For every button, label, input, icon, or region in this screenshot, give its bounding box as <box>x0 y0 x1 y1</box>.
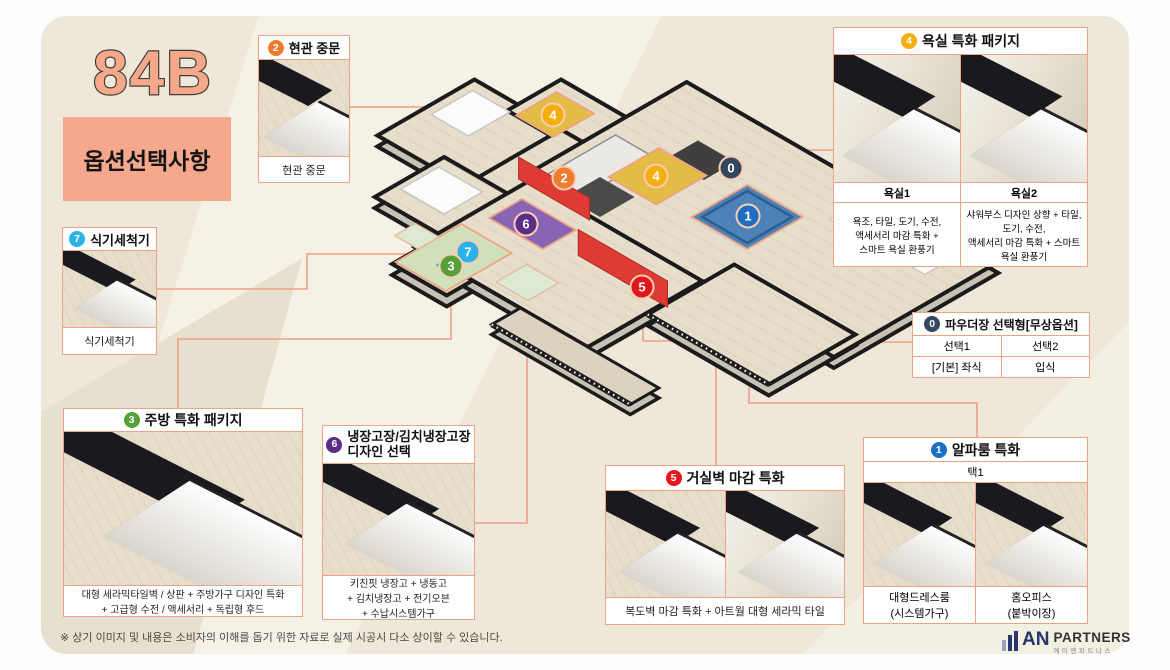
svg-text:4: 4 <box>549 108 557 123</box>
plan-badge-1: 1 <box>737 205 760 228</box>
svg-text:2: 2 <box>560 171 567 186</box>
logo-korean: 에이앤파트너스 <box>1053 645 1130 655</box>
dishwasher-title: 식기세척기 <box>90 230 150 249</box>
badge-0-icon: 0 <box>924 316 940 332</box>
alpha-room-title: 알파룸 특화 <box>952 440 1020 460</box>
an-partners-logo: AN PARTNERS 에이앤파트너스 <box>1002 630 1131 655</box>
callout-alpha-room: 1 알파룸 특화 택1 대형드레스룸 (시스템가구) 홈오피스 (붙박이장) <box>863 437 1088 624</box>
powder-value-2: 입식 <box>1001 357 1090 377</box>
kitchen-title: 주방 특화 패키지 <box>145 410 243 430</box>
dressroom-photo <box>864 483 975 586</box>
badge-7-icon: 7 <box>69 231 85 247</box>
living-wall-photo-1 <box>606 490 725 597</box>
living-wall-title: 거실벽 마감 특화 <box>687 468 785 488</box>
svg-text:4: 4 <box>652 169 660 184</box>
badge-1-icon: 1 <box>931 442 947 458</box>
bath1-photo <box>834 54 960 182</box>
svg-text:0: 0 <box>727 161 734 176</box>
entrance-door-photo <box>259 59 349 156</box>
powder-title: 파우더장 선택형[무상옵션] <box>945 316 1078 333</box>
callout-living-wall: 5 거실벽 마감 특화 복도벽 마감 특화 + 아트월 대형 세라믹 타일 <box>605 465 845 625</box>
svg-text:7: 7 <box>464 245 471 260</box>
dishwasher-photo <box>63 250 156 327</box>
bath2-photo <box>960 54 1087 182</box>
plan-badge-6: 6 <box>515 213 538 236</box>
badge-5-icon: 5 <box>666 470 682 486</box>
living-wall-caption: 복도벽 마감 특화 + 아트월 대형 세라믹 타일 <box>606 597 844 624</box>
bath-package-title: 욕실 특화 패키지 <box>922 31 1020 51</box>
svg-text:3: 3 <box>447 259 454 274</box>
unit-code: 84B <box>68 38 238 109</box>
bath1-label: 욕실1 <box>834 183 960 202</box>
plan-badge-0: 0 <box>720 157 743 180</box>
plan-badge-5: 5 <box>631 276 654 299</box>
plan-badge-2: 2 <box>553 167 576 190</box>
fridge-photo <box>323 463 474 575</box>
kitchen-caption: 대형 세라믹타일벽 / 상판 + 주방가구 디자인 특화 + 고급형 수전 / … <box>64 585 302 616</box>
badge-3-icon: 3 <box>124 412 140 428</box>
plan-badge-4: 4 <box>645 165 668 188</box>
callout-entrance-door: 2 현관 중문 현관 중문 <box>258 35 350 183</box>
badge-4-icon: 4 <box>901 33 917 49</box>
living-wall-photo-2 <box>725 490 845 597</box>
powder-header-2: 선택2 <box>1001 336 1090 356</box>
fridge-title: 냉장고장/김치냉장고장 디자인 선택 <box>347 430 470 460</box>
callout-fridge-cabinet: 6 냉장고장/김치냉장고장 디자인 선택 키친핏 냉장고 + 냉동고 + 김치냉… <box>322 425 475 620</box>
callout-kitchen-package: 3 주방 특화 패키지 대형 세라믹타일벽 / 상판 + 주방가구 디자인 특화… <box>63 408 303 617</box>
entrance-door-caption: 현관 중문 <box>259 156 349 182</box>
plan-badge-4: 4 <box>542 104 565 127</box>
kitchen-photo <box>64 431 302 585</box>
unit-subtitle: 옵션선택사항 <box>63 117 231 201</box>
svg-text:6: 6 <box>522 217 529 232</box>
powder-value-1: [기본] 좌식 <box>913 357 1001 377</box>
option-brochure-84b: { "unit": { "code": "84B", "subtitle": "… <box>0 0 1170 670</box>
svg-text:1: 1 <box>744 209 751 224</box>
callout-bath-package: 4 욕실 특화 패키지 욕실1 욕실2 욕조, 타일, 도기, 수전, 액세서리… <box>833 27 1088 267</box>
dishwasher-caption: 식기세척기 <box>63 327 156 354</box>
plan-badge-3: 3 <box>440 255 463 278</box>
bath2-desc: 샤워부스 디자인 상향 + 타일, 도기, 수전, 액세서리 마감 특화 + 스… <box>960 203 1087 266</box>
homeoffice-caption: 홈오피스 (붙박이장) <box>975 587 1087 623</box>
dressroom-caption: 대형드레스룸 (시스템가구) <box>864 587 975 623</box>
alpha-room-choice: 택1 <box>864 462 1087 482</box>
fridge-caption: 키친핏 냉장고 + 냉동고 + 김치냉장고 + 전기오븐 + 수납시스템가구 <box>323 575 474 619</box>
disclaimer-note: ※ 상기 이미지 및 내용은 소비자의 이해를 돕기 위한 자료로 실제 시공시… <box>60 629 503 645</box>
homeoffice-photo <box>975 483 1087 586</box>
badge-2-icon: 2 <box>268 40 284 56</box>
entrance-door-title: 현관 중문 <box>289 38 340 57</box>
bath2-label: 욕실2 <box>960 183 1087 202</box>
callout-powder-option: 0 파우더장 선택형[무상옵션] 선택1 선택2 [기본] 좌식 입식 <box>912 312 1090 378</box>
bath1-desc: 욕조, 타일, 도기, 수전, 액세서리 마감 특화 + 스마트 욕실 환풍기 <box>834 203 960 266</box>
logo-partners: PARTNERS <box>1053 630 1130 645</box>
callout-dishwasher: 7 식기세척기 식기세척기 <box>62 227 157 355</box>
logo-an: AN <box>1022 630 1049 650</box>
powder-header-1: 선택1 <box>913 336 1001 356</box>
svg-text:5: 5 <box>638 280 645 295</box>
badge-6-icon: 6 <box>326 437 342 453</box>
logo-building-icon <box>1002 631 1018 651</box>
